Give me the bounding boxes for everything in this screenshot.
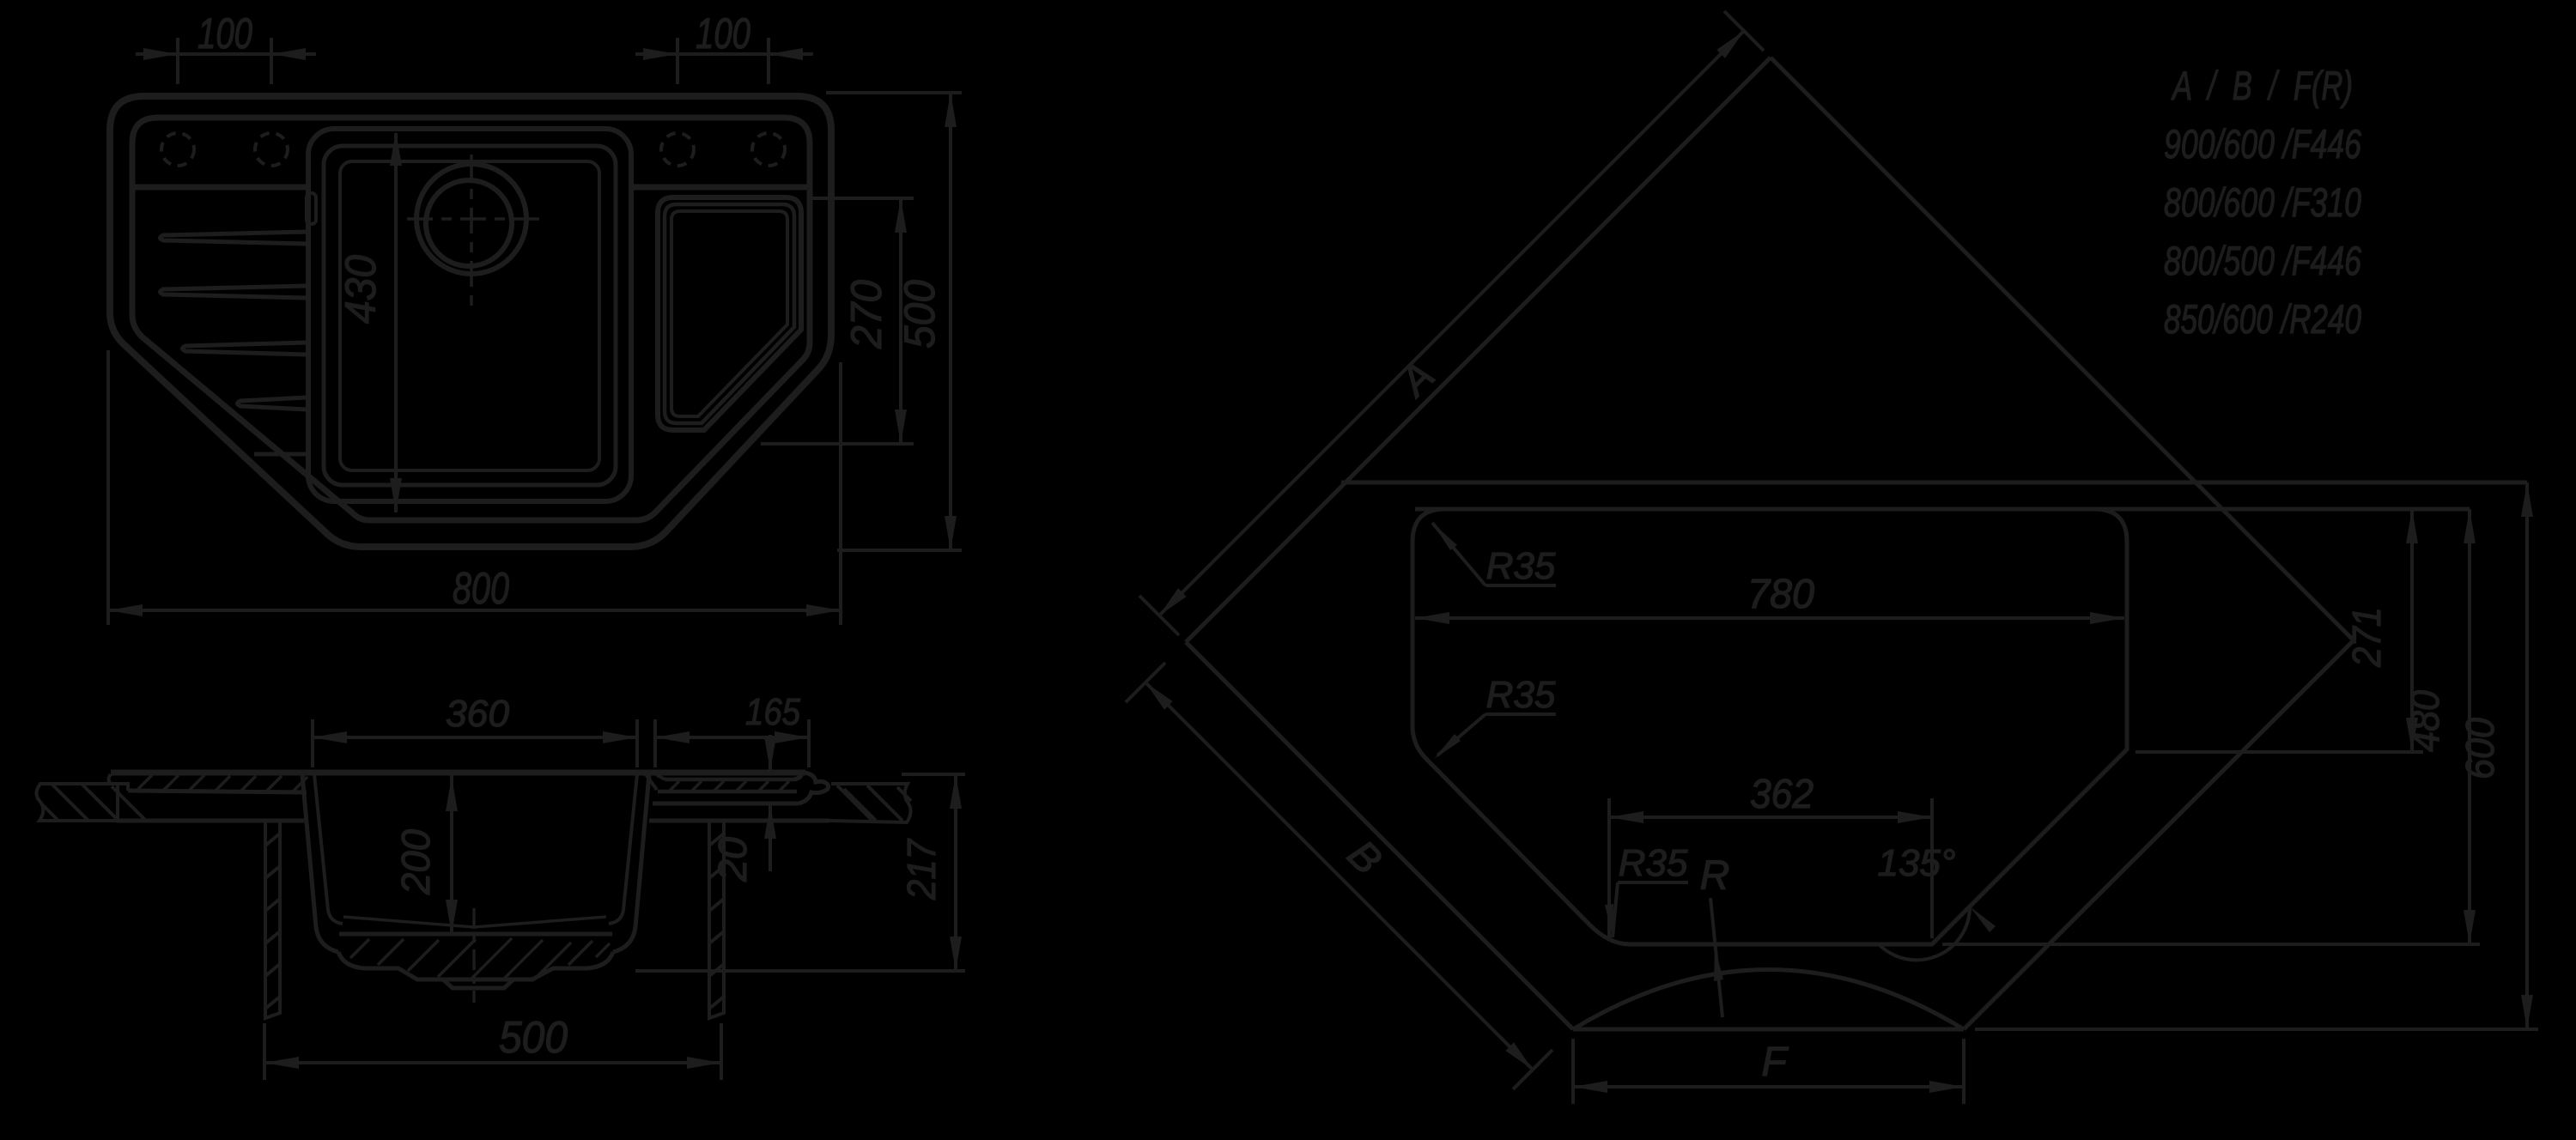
svg-text:135°: 135° (1877, 842, 1955, 884)
svg-text:217: 217 (899, 839, 944, 900)
svg-text:800/600 /F310: 800/600 /F310 (2164, 179, 2361, 225)
svg-text:500: 500 (499, 1013, 568, 1063)
svg-text:R35: R35 (1486, 674, 1556, 716)
svg-text:A / B / F(R): A / B / F(R) (2171, 63, 2353, 108)
svg-text:F: F (1761, 1040, 1789, 1085)
svg-text:780: 780 (1747, 572, 1814, 617)
svg-text:900/600 /F446: 900/600 /F446 (2164, 121, 2362, 167)
svg-text:270: 270 (842, 280, 890, 349)
svg-text:165: 165 (745, 691, 800, 733)
svg-text:362: 362 (1750, 772, 1814, 817)
svg-text:200: 200 (393, 829, 438, 895)
svg-text:100: 100 (197, 9, 252, 58)
svg-text:100: 100 (696, 9, 750, 58)
svg-text:R35: R35 (1486, 545, 1556, 587)
svg-text:R35: R35 (1619, 842, 1688, 884)
svg-text:R: R (1700, 853, 1730, 899)
svg-text:600: 600 (2458, 718, 2502, 779)
svg-text:500: 500 (896, 280, 944, 349)
svg-text:430: 430 (337, 255, 385, 324)
svg-text:20: 20 (710, 837, 755, 882)
svg-text:360: 360 (446, 693, 510, 735)
svg-text:271: 271 (2344, 607, 2389, 668)
svg-text:800/500 /F446: 800/500 /F446 (2164, 238, 2362, 283)
svg-text:480: 480 (2403, 690, 2447, 752)
svg-text:800: 800 (453, 564, 509, 614)
svg-text:850/600 /R240: 850/600 /R240 (2164, 296, 2361, 342)
